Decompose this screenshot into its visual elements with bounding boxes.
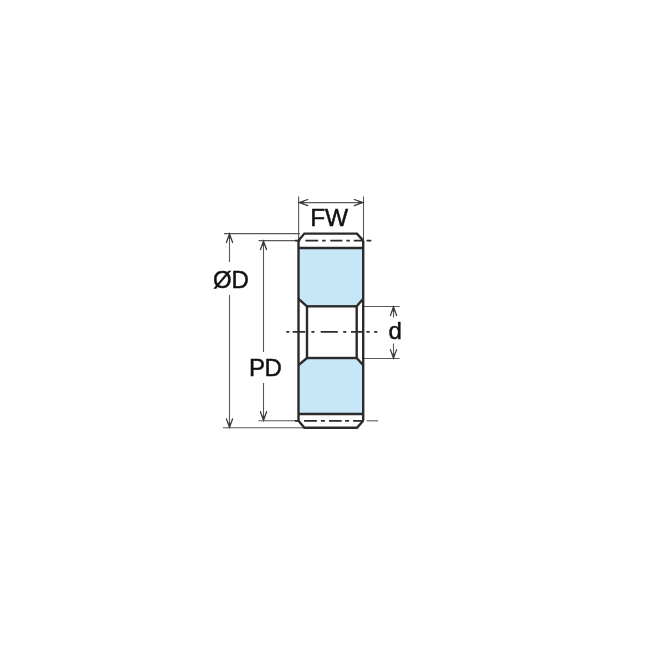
svg-text:FW: FW <box>310 204 349 231</box>
svg-text:PD: PD <box>249 354 282 381</box>
svg-text:ØD: ØD <box>213 266 249 293</box>
svg-text:d: d <box>389 317 402 344</box>
